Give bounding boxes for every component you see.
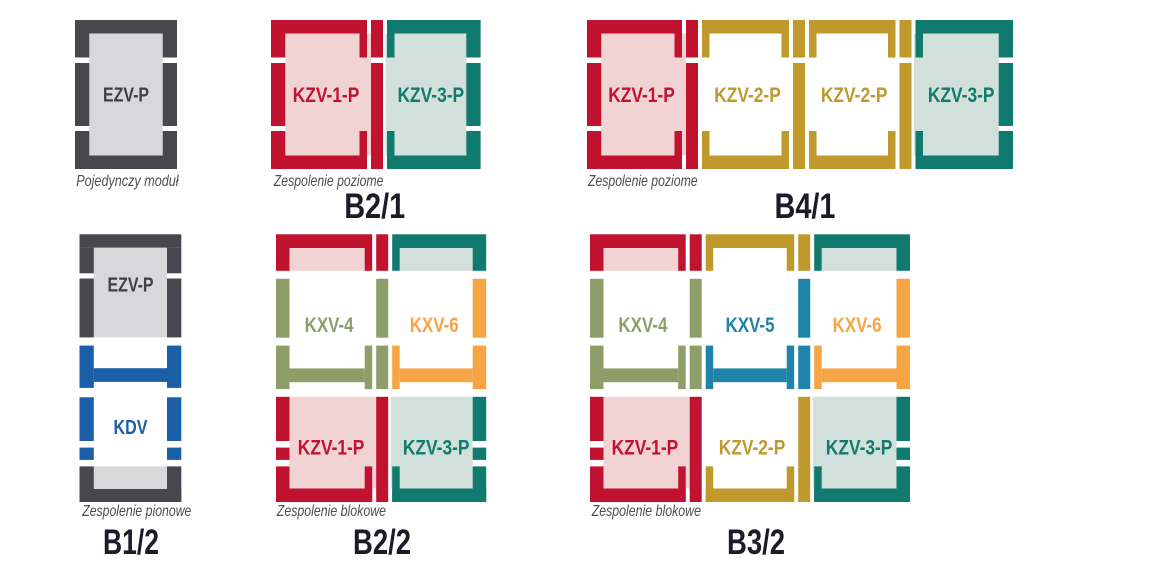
svg-text:KZV-1-P: KZV-1-P [612, 436, 679, 459]
svg-text:Zespolenie poziome: Zespolenie poziome [587, 173, 697, 190]
svg-text:B2/1: B2/1 [344, 187, 405, 226]
svg-text:KXV-4: KXV-4 [305, 314, 354, 337]
svg-text:KXV-6: KXV-6 [410, 314, 459, 337]
svg-text:Zespolenie blokowe: Zespolenie blokowe [591, 503, 701, 520]
svg-text:Zespolenie blokowe: Zespolenie blokowe [276, 503, 386, 520]
svg-text:KZV-2-P: KZV-2-P [714, 84, 781, 107]
svg-text:KZV-3-P: KZV-3-P [928, 84, 995, 107]
svg-text:KZV-2-P: KZV-2-P [719, 436, 786, 459]
svg-text:KZV-1-P: KZV-1-P [293, 84, 360, 107]
svg-text:KDV: KDV [114, 417, 149, 439]
svg-text:B2/2: B2/2 [353, 523, 411, 562]
svg-text:KZV-1-P: KZV-1-P [298, 436, 365, 459]
svg-text:B1/2: B1/2 [103, 523, 159, 562]
svg-text:Zespolenie pionowe: Zespolenie pionowe [81, 503, 191, 520]
svg-text:B4/1: B4/1 [775, 187, 836, 226]
svg-text:B3/2: B3/2 [727, 523, 785, 562]
svg-text:KZV-1-P: KZV-1-P [608, 84, 675, 107]
svg-text:KZV-2-P: KZV-2-P [821, 84, 888, 107]
svg-text:KZV-3-P: KZV-3-P [403, 436, 470, 459]
svg-text:KZV-3-P: KZV-3-P [398, 84, 465, 107]
svg-text:KXV-6: KXV-6 [833, 314, 882, 337]
svg-text:KXV-5: KXV-5 [726, 314, 775, 337]
svg-text:EZV-P: EZV-P [103, 85, 149, 107]
svg-text:KZV-3-P: KZV-3-P [826, 436, 893, 459]
svg-text:Pojedynczy moduł: Pojedynczy moduł [76, 173, 179, 190]
svg-text:EZV-P: EZV-P [108, 275, 154, 297]
svg-text:KXV-4: KXV-4 [618, 314, 667, 337]
